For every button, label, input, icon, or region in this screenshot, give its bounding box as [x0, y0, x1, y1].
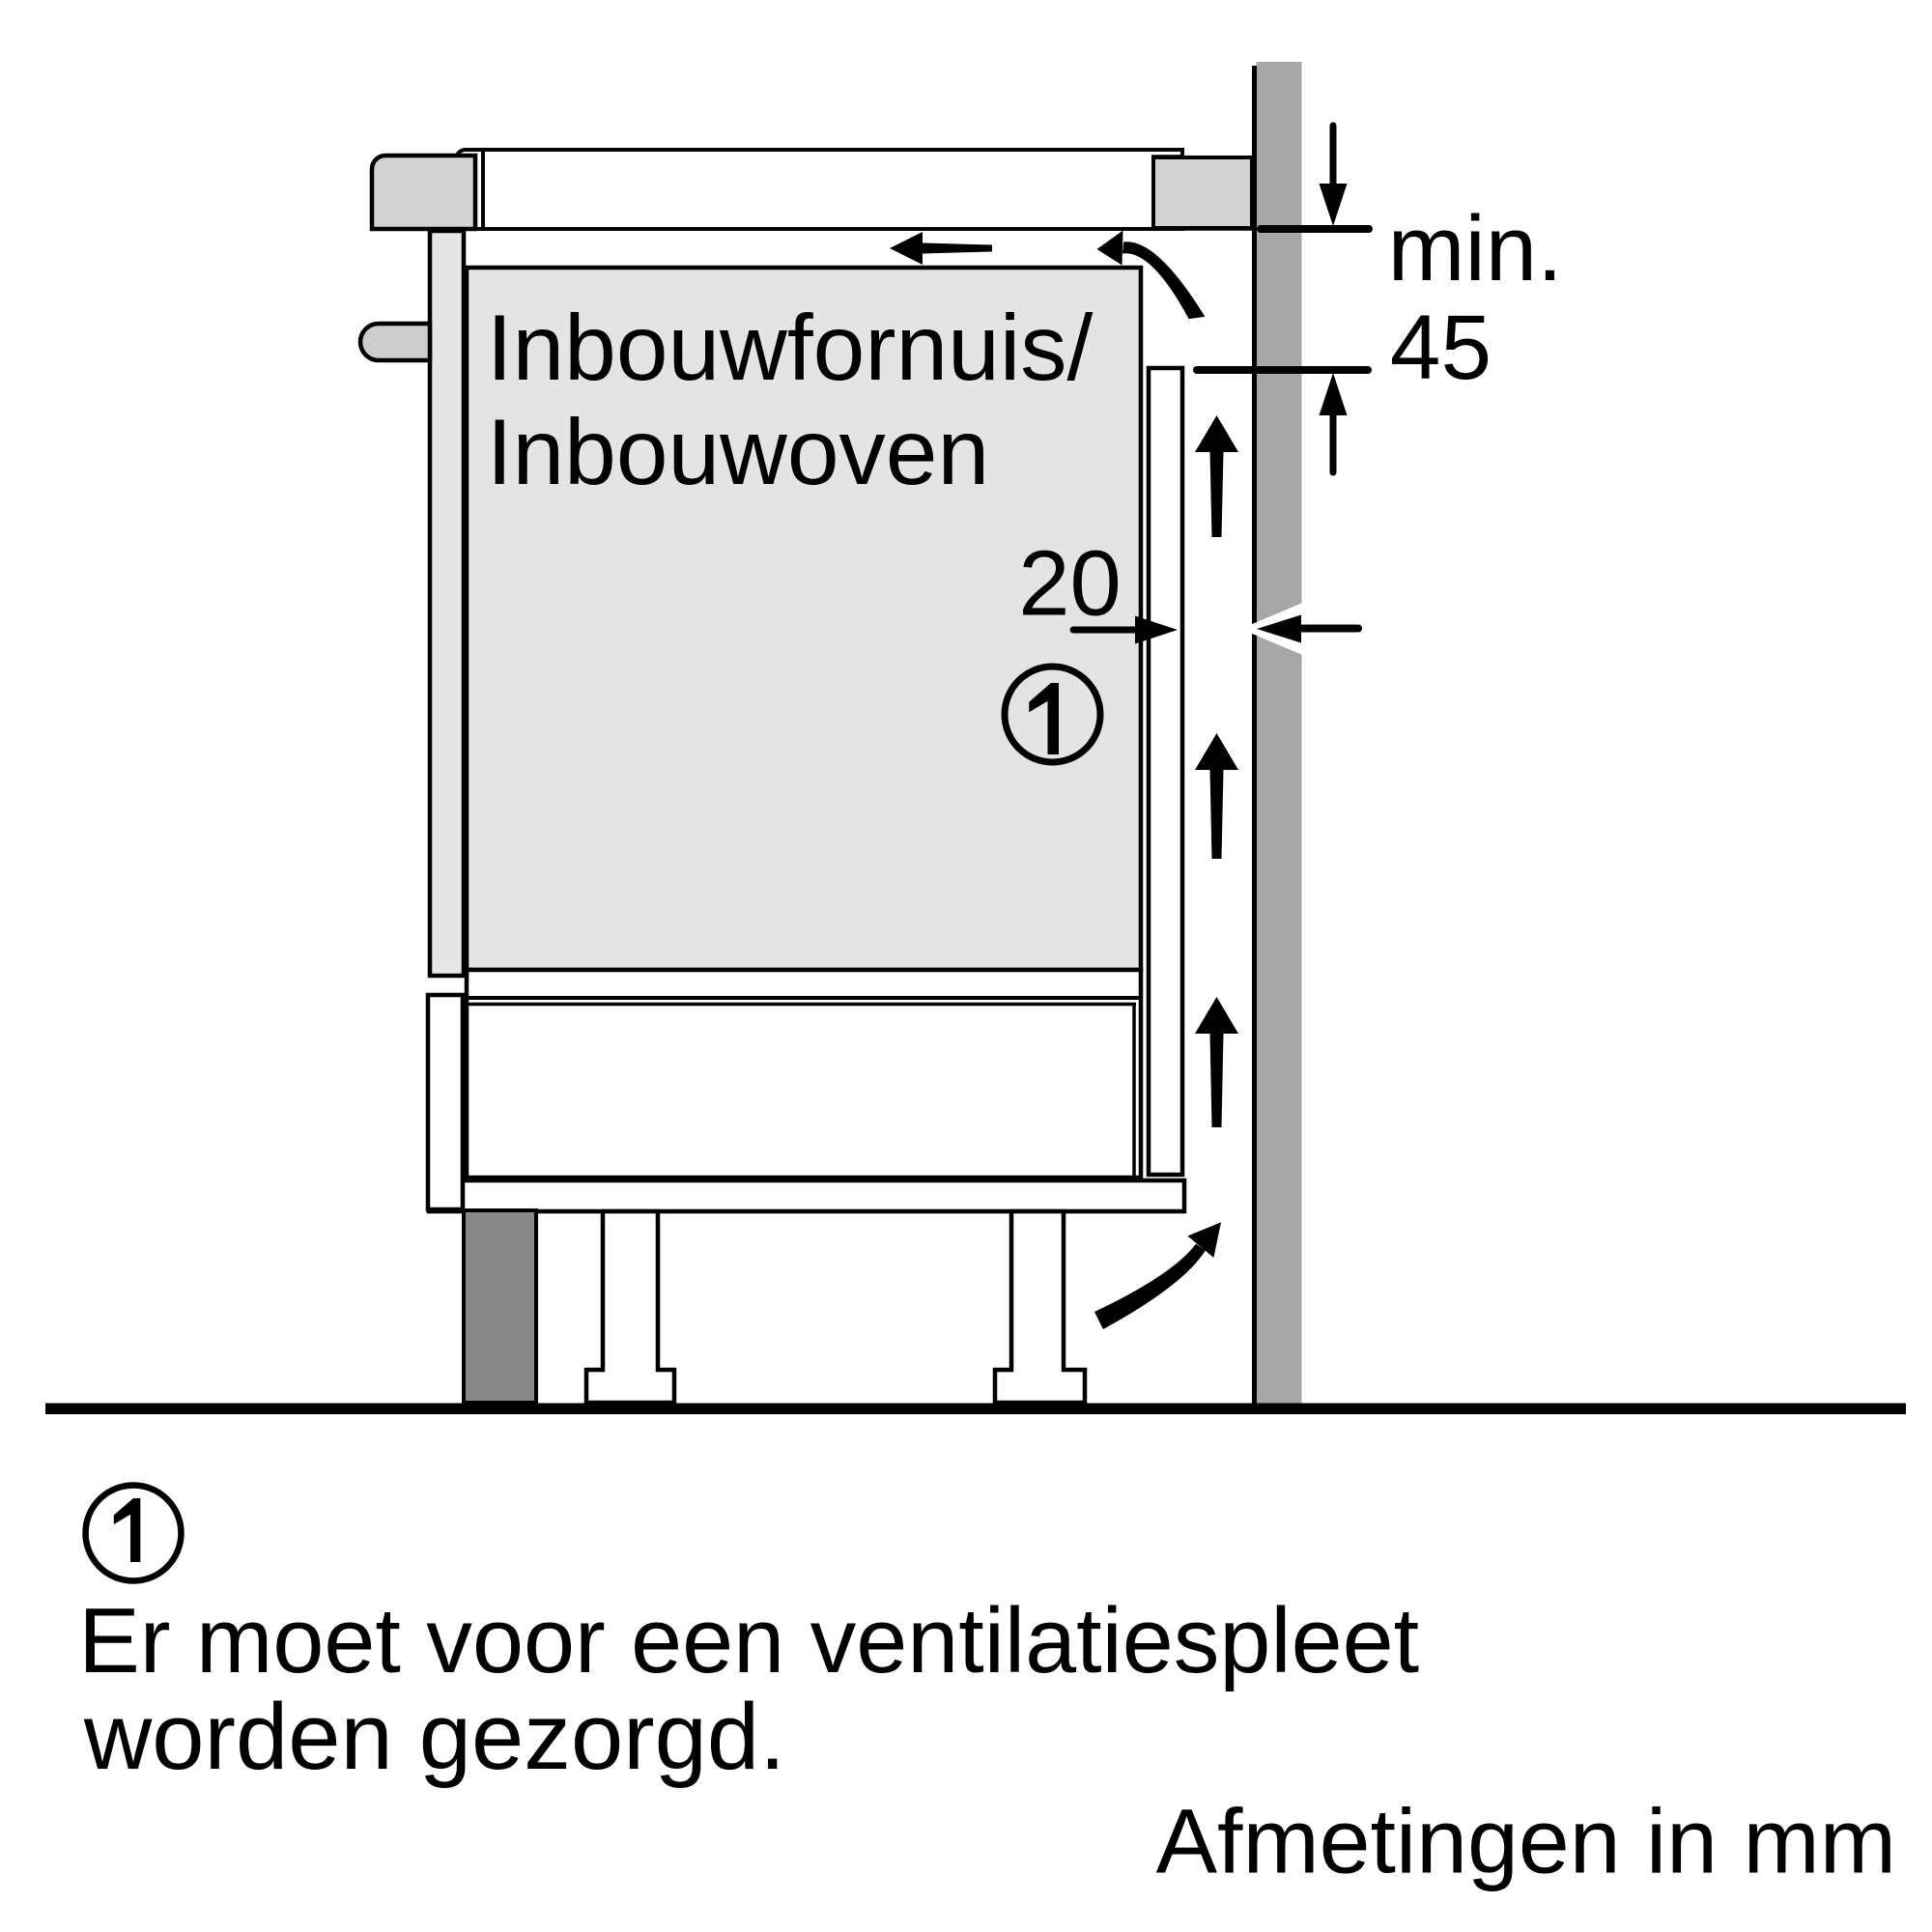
svg-text:worden gezorgd.: worden gezorgd.	[83, 1684, 785, 1789]
svg-text:Afmetingen in mm: Afmetingen in mm	[1156, 1791, 1896, 1893]
svg-text:20: 20	[1018, 532, 1122, 636]
svg-text:Er moet voor een ventilatiespl: Er moet voor een ventilatiespleet	[78, 1590, 1419, 1692]
svg-text:min.: min.	[1388, 197, 1563, 300]
svg-text:Inbouwoven: Inbouwoven	[487, 401, 989, 504]
svg-text:45: 45	[1390, 297, 1492, 399]
svg-text:Inbouwfornuis/: Inbouwfornuis/	[487, 297, 1094, 400]
